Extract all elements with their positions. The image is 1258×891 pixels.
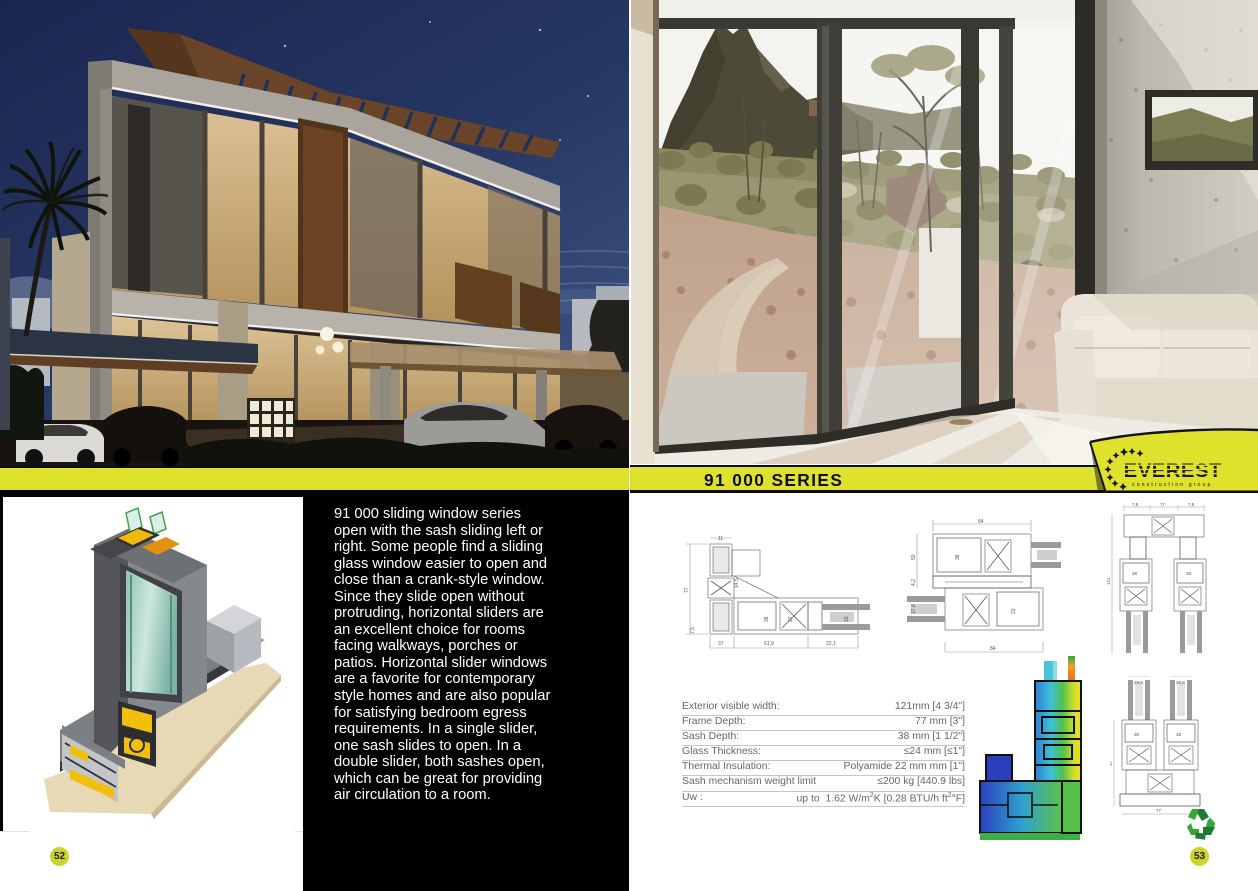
svg-text:84: 84 bbox=[978, 519, 984, 525]
svg-text:77: 77 bbox=[1156, 808, 1162, 813]
svg-text:7,5: 7,5 bbox=[690, 627, 696, 634]
svg-text:37,8: 37,8 bbox=[911, 604, 917, 614]
svg-text:84: 84 bbox=[990, 646, 996, 652]
svg-text:22: 22 bbox=[1011, 608, 1017, 614]
svg-text:77: 77 bbox=[1160, 503, 1166, 507]
svg-text:38: 38 bbox=[1134, 732, 1140, 737]
svg-text:38: 38 bbox=[955, 554, 961, 560]
svg-text:38: 38 bbox=[764, 616, 770, 622]
svg-text:37: 37 bbox=[718, 641, 724, 647]
svg-text:61,9: 61,9 bbox=[764, 641, 774, 647]
svg-text:77: 77 bbox=[684, 587, 690, 593]
svg-text:29,8: 29,8 bbox=[1134, 680, 1143, 685]
svg-text:50: 50 bbox=[911, 554, 917, 560]
svg-text:37: 37 bbox=[1110, 760, 1113, 766]
svg-text:38: 38 bbox=[1176, 732, 1182, 737]
svg-text:14,5: 14,5 bbox=[734, 578, 740, 588]
svg-text:16: 16 bbox=[844, 616, 850, 622]
svg-text:38: 38 bbox=[1186, 571, 1192, 576]
svg-text:22: 22 bbox=[788, 616, 794, 622]
svg-text:22,1: 22,1 bbox=[826, 641, 836, 647]
svg-text:7,5: 7,5 bbox=[1188, 503, 1195, 507]
svg-text:7,5: 7,5 bbox=[1132, 503, 1139, 507]
svg-text:construction group: construction group bbox=[1132, 482, 1212, 488]
svg-text:38: 38 bbox=[1132, 571, 1138, 576]
svg-text:29,8: 29,8 bbox=[1176, 680, 1185, 685]
svg-text:11: 11 bbox=[718, 536, 723, 542]
svg-text:EVEREST: EVEREST bbox=[1124, 460, 1222, 482]
svg-text:4,2: 4,2 bbox=[911, 579, 917, 586]
svg-text:121: 121 bbox=[1106, 577, 1111, 585]
